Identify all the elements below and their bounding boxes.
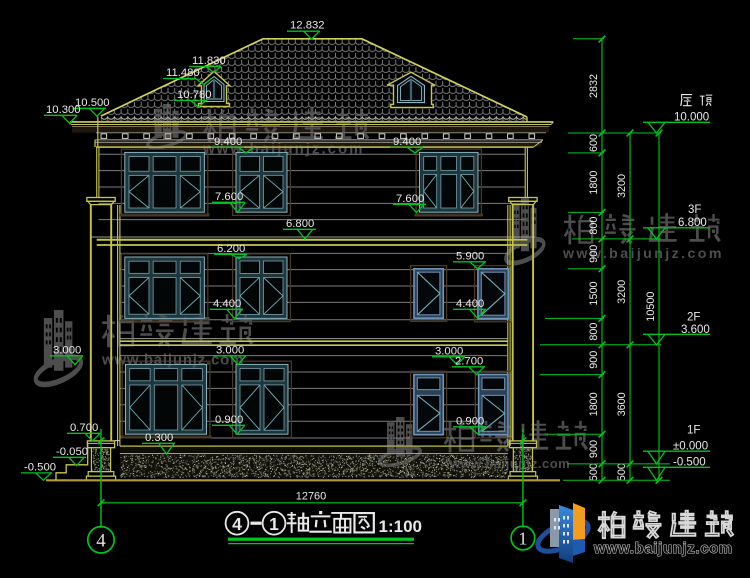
svg-text:5.900: 5.900 bbox=[456, 251, 484, 263]
svg-text:4.400: 4.400 bbox=[213, 298, 241, 310]
svg-text:4.400: 4.400 bbox=[456, 298, 484, 310]
svg-text:12.832: 12.832 bbox=[290, 20, 325, 32]
svg-text:10.780: 10.780 bbox=[177, 89, 212, 101]
svg-text:1F: 1F bbox=[687, 425, 700, 437]
svg-text:2.700: 2.700 bbox=[455, 356, 483, 368]
svg-text:0.300: 0.300 bbox=[145, 432, 173, 444]
svg-text:www.baijunjz.com: www.baijunjz.com bbox=[593, 541, 733, 557]
svg-text:10.300: 10.300 bbox=[46, 104, 81, 116]
svg-text:1500: 1500 bbox=[588, 282, 600, 306]
svg-text:3.000: 3.000 bbox=[53, 345, 81, 357]
svg-text:6.200: 6.200 bbox=[217, 243, 245, 255]
svg-text:9.400: 9.400 bbox=[214, 136, 242, 148]
svg-text:4: 4 bbox=[232, 514, 242, 534]
svg-text:800: 800 bbox=[588, 323, 600, 341]
svg-text:9.400: 9.400 bbox=[393, 136, 421, 148]
svg-text:500: 500 bbox=[616, 463, 628, 481]
svg-text:900: 900 bbox=[588, 440, 600, 458]
svg-text:0.900: 0.900 bbox=[456, 416, 484, 428]
svg-text:3200: 3200 bbox=[616, 280, 628, 304]
svg-text:0.700: 0.700 bbox=[70, 422, 98, 434]
svg-text:www.baijunjz.com: www.baijunjz.com bbox=[562, 246, 724, 262]
svg-text:1800: 1800 bbox=[588, 171, 600, 195]
svg-text:3F: 3F bbox=[688, 204, 701, 216]
svg-text:www.baijunjz.com: www.baijunjz.com bbox=[449, 456, 570, 471]
svg-text:10500: 10500 bbox=[645, 292, 657, 322]
svg-text:11.480: 11.480 bbox=[166, 67, 200, 79]
svg-text:-0.050: -0.050 bbox=[56, 446, 88, 458]
svg-text:1: 1 bbox=[518, 529, 527, 549]
svg-text:12760: 12760 bbox=[296, 491, 327, 503]
svg-text:6.800: 6.800 bbox=[286, 218, 314, 230]
svg-text:900: 900 bbox=[588, 245, 600, 263]
svg-text:3600: 3600 bbox=[616, 392, 628, 416]
svg-text:500: 500 bbox=[588, 463, 600, 481]
svg-text:3.000: 3.000 bbox=[216, 345, 244, 357]
svg-text:2F: 2F bbox=[687, 312, 700, 324]
svg-text:1: 1 bbox=[269, 514, 279, 534]
svg-text:3200: 3200 bbox=[616, 174, 628, 198]
svg-text:800: 800 bbox=[588, 217, 600, 235]
svg-text:-0.500: -0.500 bbox=[24, 462, 56, 474]
svg-text:11.830: 11.830 bbox=[192, 55, 226, 67]
svg-text:1:100: 1:100 bbox=[379, 517, 422, 536]
svg-text:4: 4 bbox=[96, 531, 106, 552]
svg-text:600: 600 bbox=[588, 134, 600, 152]
svg-text:0.900: 0.900 bbox=[215, 414, 243, 426]
svg-text:7.600: 7.600 bbox=[215, 191, 243, 203]
svg-text:900: 900 bbox=[588, 351, 600, 369]
svg-text:2832: 2832 bbox=[588, 74, 600, 98]
svg-text:7.600: 7.600 bbox=[396, 193, 424, 205]
svg-text:1800: 1800 bbox=[588, 392, 600, 416]
